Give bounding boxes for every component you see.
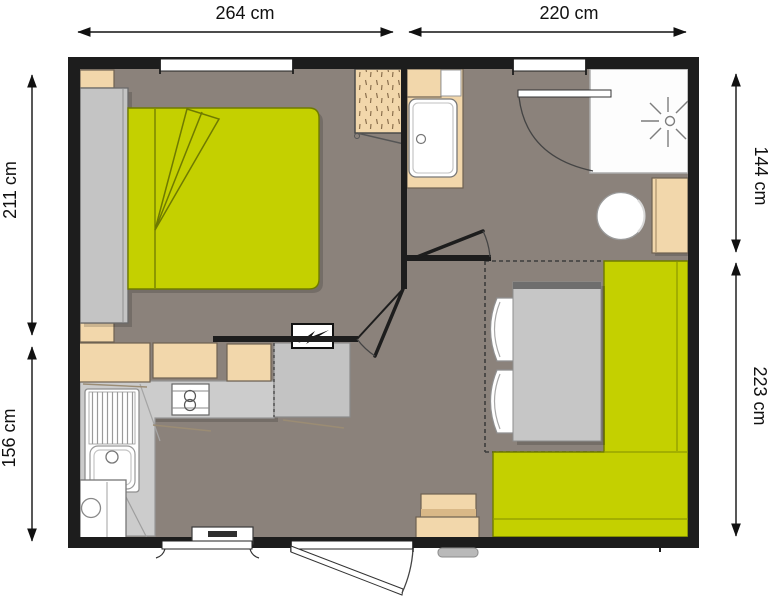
floorplan-drawing: 264 cm 220 cm 211 cm 156 cm 144 cm 223 c… (0, 0, 769, 600)
two-burner-hob-icon (172, 384, 209, 415)
dining-table (513, 282, 601, 441)
window-mark-left (156, 549, 165, 558)
wall-left (68, 57, 80, 548)
bedside-shelf-top (80, 70, 114, 88)
wall-cabinet-1 (77, 343, 150, 382)
cistern-cabinet (652, 178, 688, 253)
dim-label-left-upper: 211 cm (0, 161, 20, 219)
entry-step-icon (416, 494, 479, 540)
drain-icon (417, 135, 426, 144)
double-bed (128, 108, 319, 289)
wall-cabinet-3 (227, 344, 271, 381)
dim-label-left-lower: 156 cm (0, 408, 19, 467)
entrance-door-swing-arc (402, 549, 413, 593)
wall-cabinet-2 (153, 343, 217, 378)
dim-label-top-right: 220 cm (539, 3, 598, 23)
wardrobe (80, 88, 128, 323)
dim-label-right-upper: 144 cm (751, 146, 769, 205)
wall-right (688, 57, 699, 548)
window-mark-right (250, 549, 259, 558)
shower-icon (590, 69, 688, 173)
doormat-strip (208, 531, 237, 537)
bedroom-partition-wall (213, 336, 358, 342)
exterior-step (438, 548, 478, 557)
dining-zone (485, 261, 692, 541)
washbasin-icon (407, 69, 463, 188)
entrance-door-leaf (291, 546, 403, 595)
dim-label-right-lower: 223 cm (750, 366, 769, 425)
toilet-icon (597, 193, 645, 240)
kitchen-appliance-cabinet (274, 343, 350, 417)
dim-label-top-left: 264 cm (215, 3, 274, 23)
clothes-rack-icon (355, 69, 405, 144)
bottom-window (162, 541, 252, 549)
bathroom-window-opening (513, 59, 586, 71)
folding-chair-1 (491, 298, 515, 361)
floorplan-canvas: 264 cm 220 cm 211 cm 156 cm 144 cm 223 c… (0, 0, 769, 600)
entrance-door-opening (291, 541, 413, 549)
kitchen-sink-icon (85, 389, 139, 492)
fridge-icon (80, 480, 126, 540)
faucet-icon (106, 451, 118, 463)
bathroom-casement-leaf (518, 90, 611, 97)
bedroom-window (160, 59, 293, 71)
folding-chair-2 (491, 370, 515, 433)
table-top-shadow-strip (513, 282, 601, 289)
